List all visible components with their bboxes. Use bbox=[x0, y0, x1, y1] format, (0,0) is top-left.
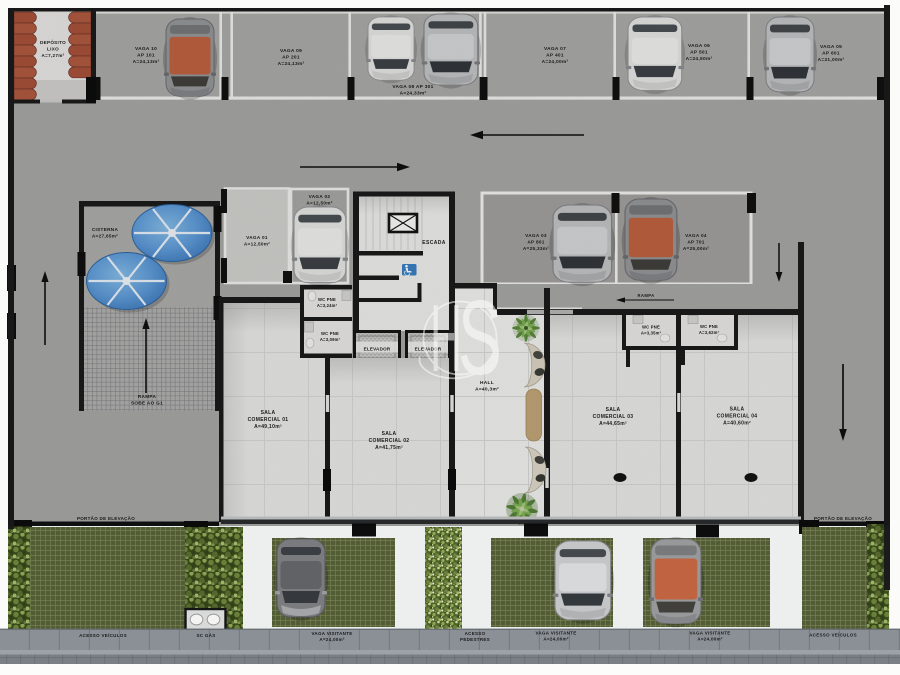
svg-text:S: S bbox=[458, 278, 502, 397]
